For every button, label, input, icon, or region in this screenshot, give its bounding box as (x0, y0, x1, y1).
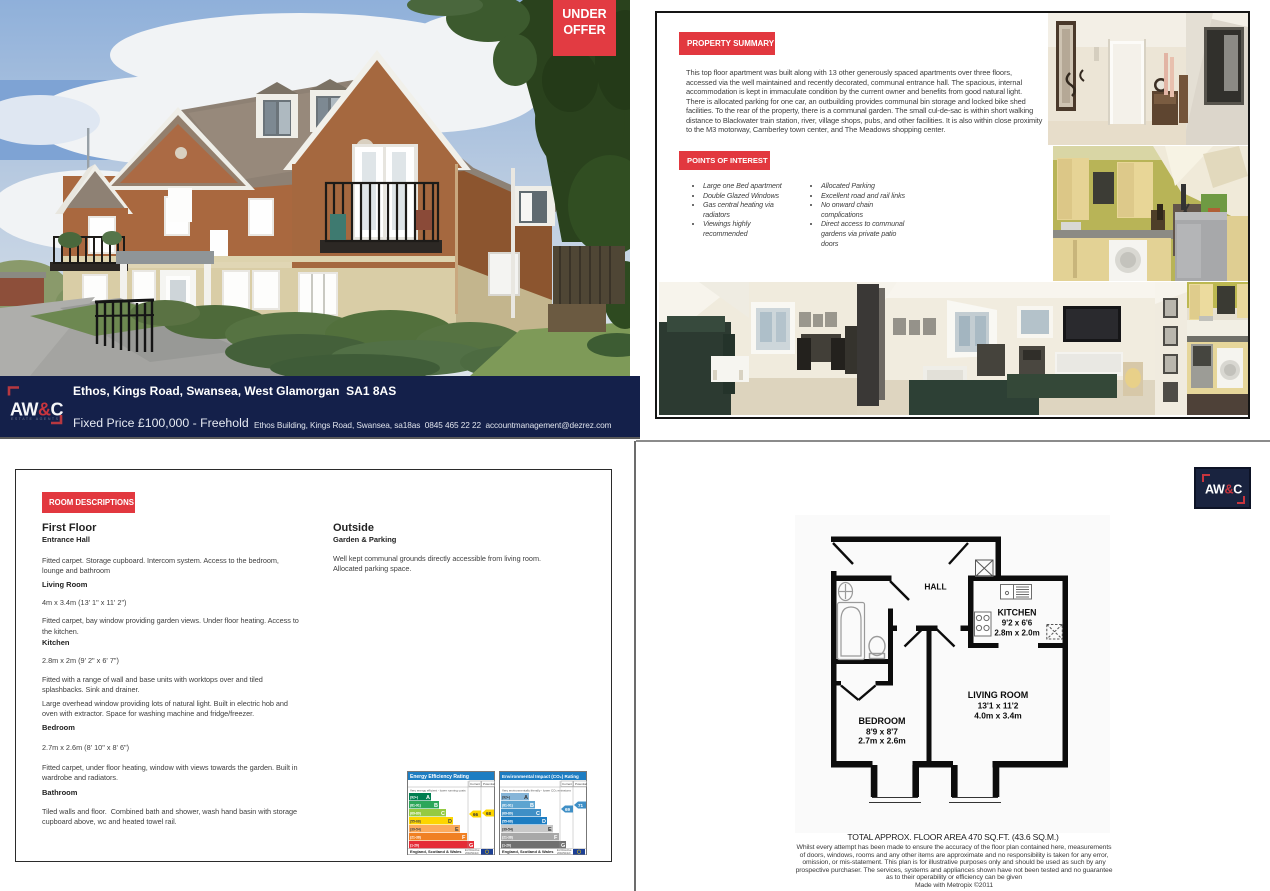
svg-text:Environmental Impact (CO₂) Rat: Environmental Impact (CO₂) Rating (502, 774, 579, 779)
svg-text:LIVING ROOM: LIVING ROOM (968, 690, 1029, 700)
svg-text:(39-54): (39-54) (502, 828, 513, 832)
svg-text:(1-20): (1-20) (410, 844, 419, 848)
svg-text:Very environmentally friendly: Very environmentally friendly - lower CO… (502, 789, 571, 793)
svg-text:A: A (524, 795, 528, 801)
svg-text:68: 68 (486, 811, 492, 816)
svg-text:Current: Current (562, 782, 572, 786)
svg-text:(92+): (92+) (502, 796, 510, 800)
svg-text:(1-20): (1-20) (502, 844, 511, 848)
svg-text:71: 71 (578, 803, 584, 808)
svg-text:England, Scotland & Wales: England, Scotland & Wales (410, 849, 462, 854)
svg-text:69: 69 (565, 807, 571, 812)
svg-text:9'2 x 6'6: 9'2 x 6'6 (1002, 619, 1033, 628)
svg-text:D: D (542, 819, 546, 825)
svg-text:England, Scotland & Wales: England, Scotland & Wales (502, 849, 554, 854)
svg-text:C: C (441, 811, 445, 817)
svg-text:D: D (448, 819, 452, 825)
svg-text:KITCHEN: KITCHEN (997, 608, 1036, 618)
svg-text:(21-38): (21-38) (502, 836, 513, 840)
svg-text:Current: Current (470, 782, 480, 786)
svg-text:(92+): (92+) (410, 796, 418, 800)
svg-text:B: B (530, 803, 534, 809)
svg-text:Energy Efficiency Rating: Energy Efficiency Rating (410, 774, 469, 780)
svg-text:ESTATE AGENTS: ESTATE AGENTS (11, 417, 60, 421)
svg-text:B: B (434, 803, 438, 809)
svg-text:E: E (455, 827, 459, 833)
svg-text:HALL: HALL (924, 582, 946, 592)
svg-text:4.0m x 3.4m: 4.0m x 3.4m (974, 711, 1022, 721)
svg-text:(69-80): (69-80) (502, 812, 513, 816)
svg-text:(21-38): (21-38) (410, 836, 421, 840)
svg-text:13'1 x 11'2: 13'1 x 11'2 (978, 701, 1019, 711)
svg-text:2.7m x 2.6m: 2.7m x 2.6m (858, 736, 906, 746)
svg-text:(55-68): (55-68) (502, 820, 513, 824)
svg-text:AW&C: AW&C (1205, 483, 1242, 497)
svg-text:2002/91/EC: 2002/91/EC (465, 851, 479, 855)
svg-text:BEDROOM: BEDROOM (859, 716, 906, 726)
svg-text:2.8m x 2.0m: 2.8m x 2.0m (994, 629, 1039, 638)
svg-text:C: C (536, 811, 540, 817)
svg-text:E: E (548, 827, 552, 833)
svg-text:Potential: Potential (483, 782, 495, 786)
svg-text:(81-91): (81-91) (502, 804, 513, 808)
svg-text:Very energy efficient - lower: Very energy efficient - lower running co… (410, 789, 466, 793)
svg-text:Potential: Potential (575, 782, 587, 786)
svg-text:66: 66 (473, 812, 479, 817)
svg-text:(39-54): (39-54) (410, 828, 421, 832)
svg-text:(55-68): (55-68) (410, 820, 421, 824)
svg-text:(81-91): (81-91) (410, 804, 421, 808)
svg-text:A: A (426, 795, 430, 801)
svg-text:2002/91/EC: 2002/91/EC (557, 851, 571, 855)
svg-text:(69-80): (69-80) (410, 812, 421, 816)
